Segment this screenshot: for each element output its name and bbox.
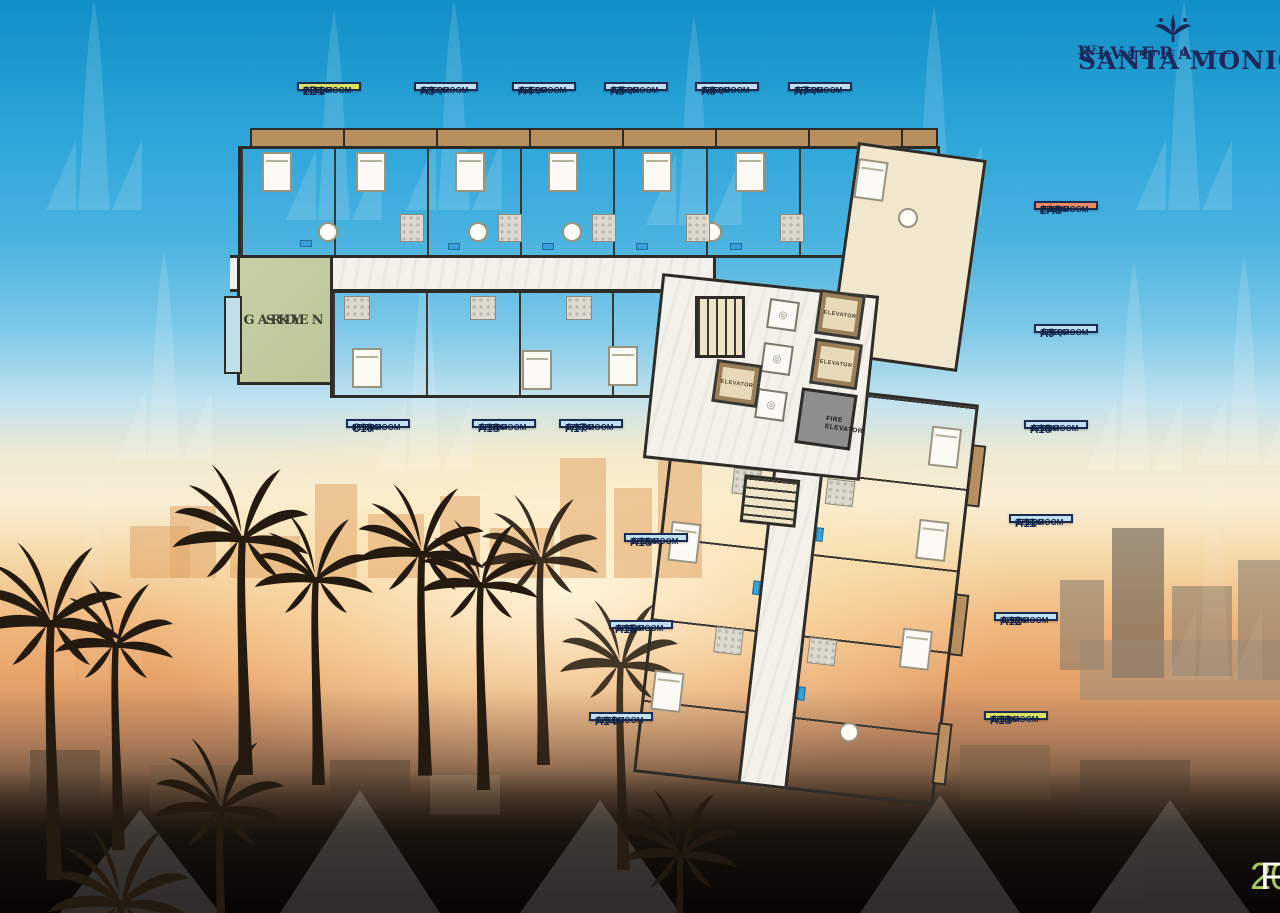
fixture-accent: [730, 243, 742, 250]
elevator-box-2: ELEVATOR: [809, 338, 863, 390]
floor-plan: SKY GARDEN: [0, 0, 1280, 913]
bathroom-block: [470, 296, 496, 320]
fixture-accent: [300, 240, 312, 247]
bed-icon: [899, 628, 933, 671]
table-icon: [468, 222, 488, 242]
table-icon: [318, 222, 338, 242]
unit-label-2B1: 2B1 2 BEDROOM 56 SQM: [297, 82, 361, 91]
bed-icon: [548, 152, 578, 192]
elevator-box-3: ELEVATOR: [711, 359, 763, 408]
left-balcony-pool: [224, 296, 242, 374]
elevator-label: ELEVATOR: [823, 309, 857, 320]
bed-icon: [262, 152, 292, 192]
top-wing-upper-units: [238, 146, 940, 258]
bathroom-block: [686, 214, 710, 242]
unit-label-A4: A4 1 BEDROOM 35 SQM: [512, 82, 576, 91]
lobby-square: ◎: [754, 388, 788, 422]
unit-label-A18: A18 1 BEDROOM 30 SQM: [472, 419, 536, 428]
unit-label-A15: A15 1 BEDROOM 36 SQM: [609, 620, 673, 629]
lobby-square: ◎: [760, 342, 794, 376]
unit-label-A6: A6 1 BEDROOM 37 SQM: [695, 82, 759, 91]
brand-logo: THERIVIERA SANTA MONICA JOMTIEN: [1078, 14, 1268, 44]
bed-icon: [352, 348, 382, 388]
bed-icon: [650, 670, 684, 713]
bed-icon: [735, 152, 765, 192]
unit-label-A16: A16 1 BEDROOM 30 SQM: [624, 533, 688, 542]
unit-label-A14: A14 1 BEDROOM 33 SQM: [589, 712, 653, 721]
staircase-1: [695, 296, 745, 358]
bathroom-block: [713, 626, 744, 655]
screenshot-root: SKY GARDEN: [0, 0, 1280, 913]
bed-icon: [915, 519, 949, 562]
staircase-2: [740, 474, 801, 528]
unit-label-A13: A13 1 BEDROOM 50 SQM: [984, 711, 1048, 720]
table-icon: [562, 222, 582, 242]
bathroom-block: [825, 478, 856, 507]
bathroom-block: [400, 214, 424, 242]
unit-label-A5: A5 1 BEDROOM 35 SQM: [604, 82, 668, 91]
unit-label-A9: A9 1 BEDROOM 37 SQM: [1034, 324, 1098, 333]
floor-plan-label: Floor Plan: [1260, 856, 1280, 899]
fixture-accent: [542, 243, 554, 250]
bathroom-block: [780, 214, 804, 242]
sky-garden-label-line2: GARDEN: [243, 313, 326, 328]
bed-icon: [608, 346, 638, 386]
elevator-box-1: ELEVATOR: [814, 289, 866, 340]
unit-label-A3: A3 1 BEDROOM 37 SQM: [414, 82, 478, 91]
bathroom-block: [592, 214, 616, 242]
unit-label-A11: A11 1 BEDROOM 37 SQM: [1009, 514, 1073, 523]
bathroom-block: [344, 296, 370, 320]
sky-garden: SKY GARDEN: [237, 255, 333, 385]
unit-label-A7: A7 1 BEDROOM 37 SQM: [788, 82, 852, 91]
bathroom-block: [498, 214, 522, 242]
bed-icon: [522, 350, 552, 390]
bed-icon: [642, 152, 672, 192]
elevator-label: ELEVATOR: [819, 359, 853, 370]
fleur-icon: [1143, 14, 1203, 44]
fire-elevator-box: FIRE ELEVATOR: [794, 387, 857, 450]
bathroom-block: [566, 296, 592, 320]
unit-label-C19: C19 1 BEDROOM 30 SQM: [346, 419, 410, 428]
brand-jomtien: JOMTIEN: [1078, 48, 1231, 58]
unit-label-A10: A10 1 BEDROOM 35 SQM: [1024, 420, 1088, 429]
bed-icon: [853, 158, 888, 202]
lobby-square: ◎: [766, 298, 800, 332]
bathroom-block: [807, 637, 838, 666]
fixture-accent: [448, 243, 460, 250]
fixture-accent: [636, 243, 648, 250]
bed-icon: [928, 426, 962, 469]
table-icon: [898, 208, 918, 228]
unit-label-A17: A17 1 BEDROOM 30 SQM: [559, 419, 623, 428]
unit-label-2A8: 2A8 2 BEDROOM 65 SQM: [1034, 201, 1098, 210]
unit-label-A12: A12 1 BEDROOM 35 SQM: [994, 612, 1058, 621]
elevator-label: ELEVATOR: [720, 378, 754, 389]
bed-icon: [356, 152, 386, 192]
balcony-strip-top: [250, 128, 938, 148]
bed-icon: [455, 152, 485, 192]
